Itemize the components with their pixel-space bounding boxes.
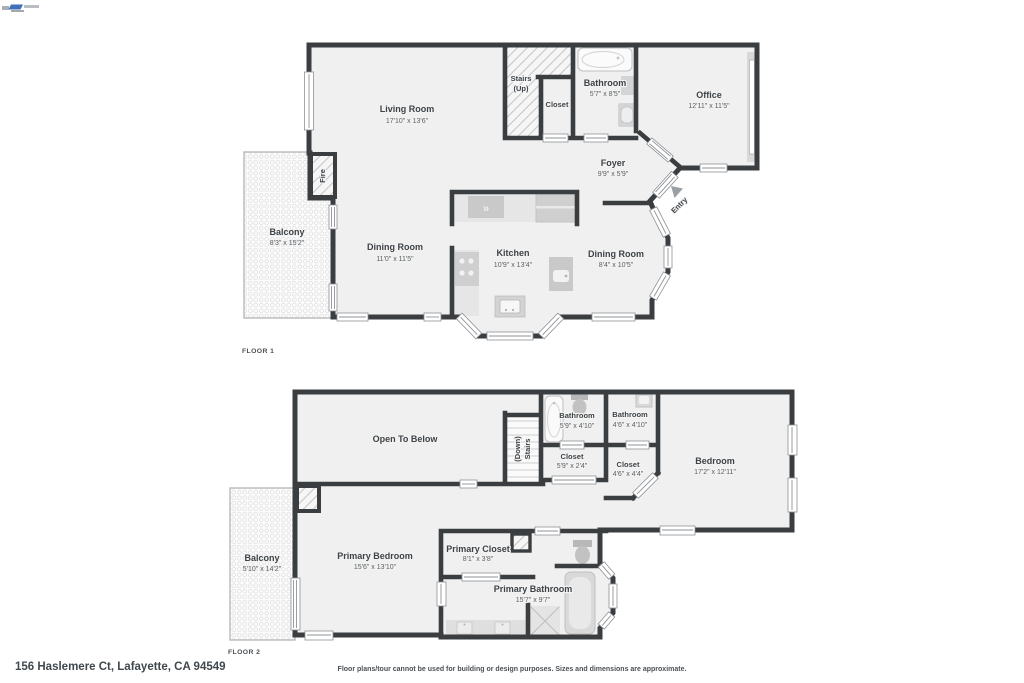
dining-room1-dims: 11'0" x 11'5" xyxy=(376,256,414,263)
dining-room1-label: Dining Room xyxy=(367,242,423,252)
floor1-plan: » xyxy=(242,45,757,355)
closet1-label: Closet xyxy=(561,452,584,461)
office-label: Office xyxy=(696,90,722,100)
primary-bathroom-dims: 15'7" x 9'7" xyxy=(516,597,551,604)
stairs-down-sub: (Down) xyxy=(513,436,522,462)
stairs-down-label: Stairs xyxy=(523,439,532,460)
balcony1-dims: 8'3" x 15'2" xyxy=(270,240,305,247)
svg-text:»: » xyxy=(483,203,489,215)
kitchen-dims: 10'9" x 13'4" xyxy=(494,262,533,269)
living-room-label: Living Room xyxy=(380,104,435,114)
bathroom2-dims: 4'6" x 4'10" xyxy=(613,422,648,429)
primary-closet-label: Primary Closet xyxy=(446,544,510,554)
bathroom2-label: Bathroom xyxy=(612,410,648,419)
office-dims: 12'11" x 11'5" xyxy=(688,103,730,110)
balcony2-label: Balcony xyxy=(244,553,279,563)
dining-room2-label: Dining Room xyxy=(588,249,644,259)
floor2-title: FLOOR 2 xyxy=(228,649,260,656)
primary-bathroom-label: Primary Bathroom xyxy=(494,584,573,594)
balcony2-dims: 5'10" x 14'2" xyxy=(243,566,282,573)
foyer-dims: 9'9" x 5'9" xyxy=(598,171,629,178)
stairs-up-label: Stairs xyxy=(511,74,532,83)
primary-closet-dims: 8'1" x 3'8" xyxy=(463,556,494,563)
primary-bedroom-label: Primary Bedroom xyxy=(337,551,413,561)
disclaimer-text: Floor plans/tour cannot be used for buil… xyxy=(0,666,1024,673)
bathroom-label: Bathroom xyxy=(584,78,627,88)
floorplan-canvas: » xyxy=(0,0,1024,683)
living-room-dims: 17'10" x 13'6" xyxy=(386,118,429,125)
kitchen-label: Kitchen xyxy=(496,248,529,258)
open-to-below-label: Open To Below xyxy=(373,434,439,444)
closet1-dims: 5'9" x 2'4" xyxy=(557,463,588,470)
bedroom-label: Bedroom xyxy=(695,456,735,466)
closet-label: Closet xyxy=(546,100,569,109)
bathroom1-dims: 5'9" x 4'10" xyxy=(560,423,595,430)
floor2-balcony-deck xyxy=(230,488,295,640)
bathroom-dims: 5'7" x 8'5" xyxy=(590,91,621,98)
foyer-label: Foyer xyxy=(601,158,626,168)
fireplace-label: Fire xyxy=(318,169,327,183)
primary-bedroom-dims: 15'6" x 13'10" xyxy=(354,564,397,571)
balcony1-label: Balcony xyxy=(269,227,304,237)
closet2-dims: 4'6" x 4'4" xyxy=(613,471,644,478)
bathroom1-label: Bathroom xyxy=(559,411,595,420)
closet2-label: Closet xyxy=(617,460,640,469)
dining-room2-dims: 8'4" x 10'5" xyxy=(599,262,634,269)
floor2-plan: Open To Below Stairs (Down) Bathroom 5'9… xyxy=(228,392,797,656)
floor2-chase xyxy=(512,534,530,551)
floor2-fireplace xyxy=(297,486,319,511)
bedroom-dims: 17'2" x 12'11" xyxy=(694,469,736,476)
floor1-title: FLOOR 1 xyxy=(242,348,274,355)
stairs-up-sub: (Up) xyxy=(514,84,529,93)
entry-label: Entry xyxy=(669,195,690,216)
